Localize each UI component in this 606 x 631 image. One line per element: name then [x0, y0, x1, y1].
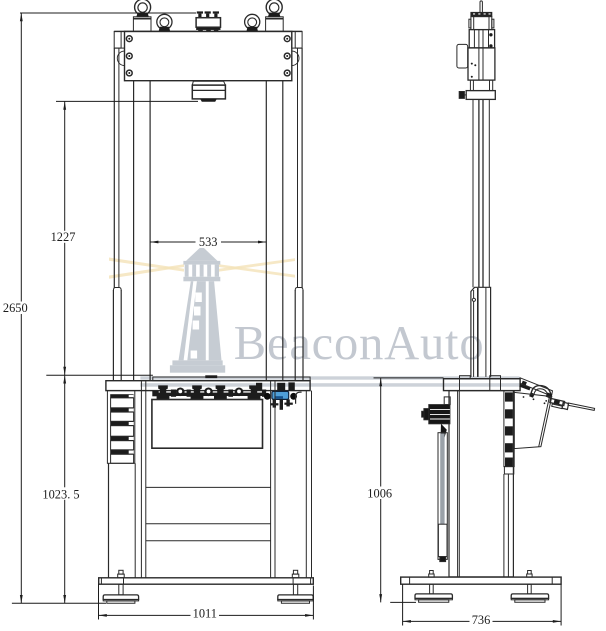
svg-text:1006: 1006 [367, 486, 392, 500]
svg-text:736: 736 [472, 613, 491, 627]
svg-text:BeaconAuto: BeaconAuto [234, 317, 484, 370]
svg-text:1023. 5: 1023. 5 [42, 487, 79, 501]
svg-text:1011: 1011 [193, 606, 217, 620]
svg-text:533: 533 [199, 235, 218, 249]
svg-text:2650: 2650 [3, 301, 28, 315]
svg-text:1227: 1227 [51, 230, 76, 244]
